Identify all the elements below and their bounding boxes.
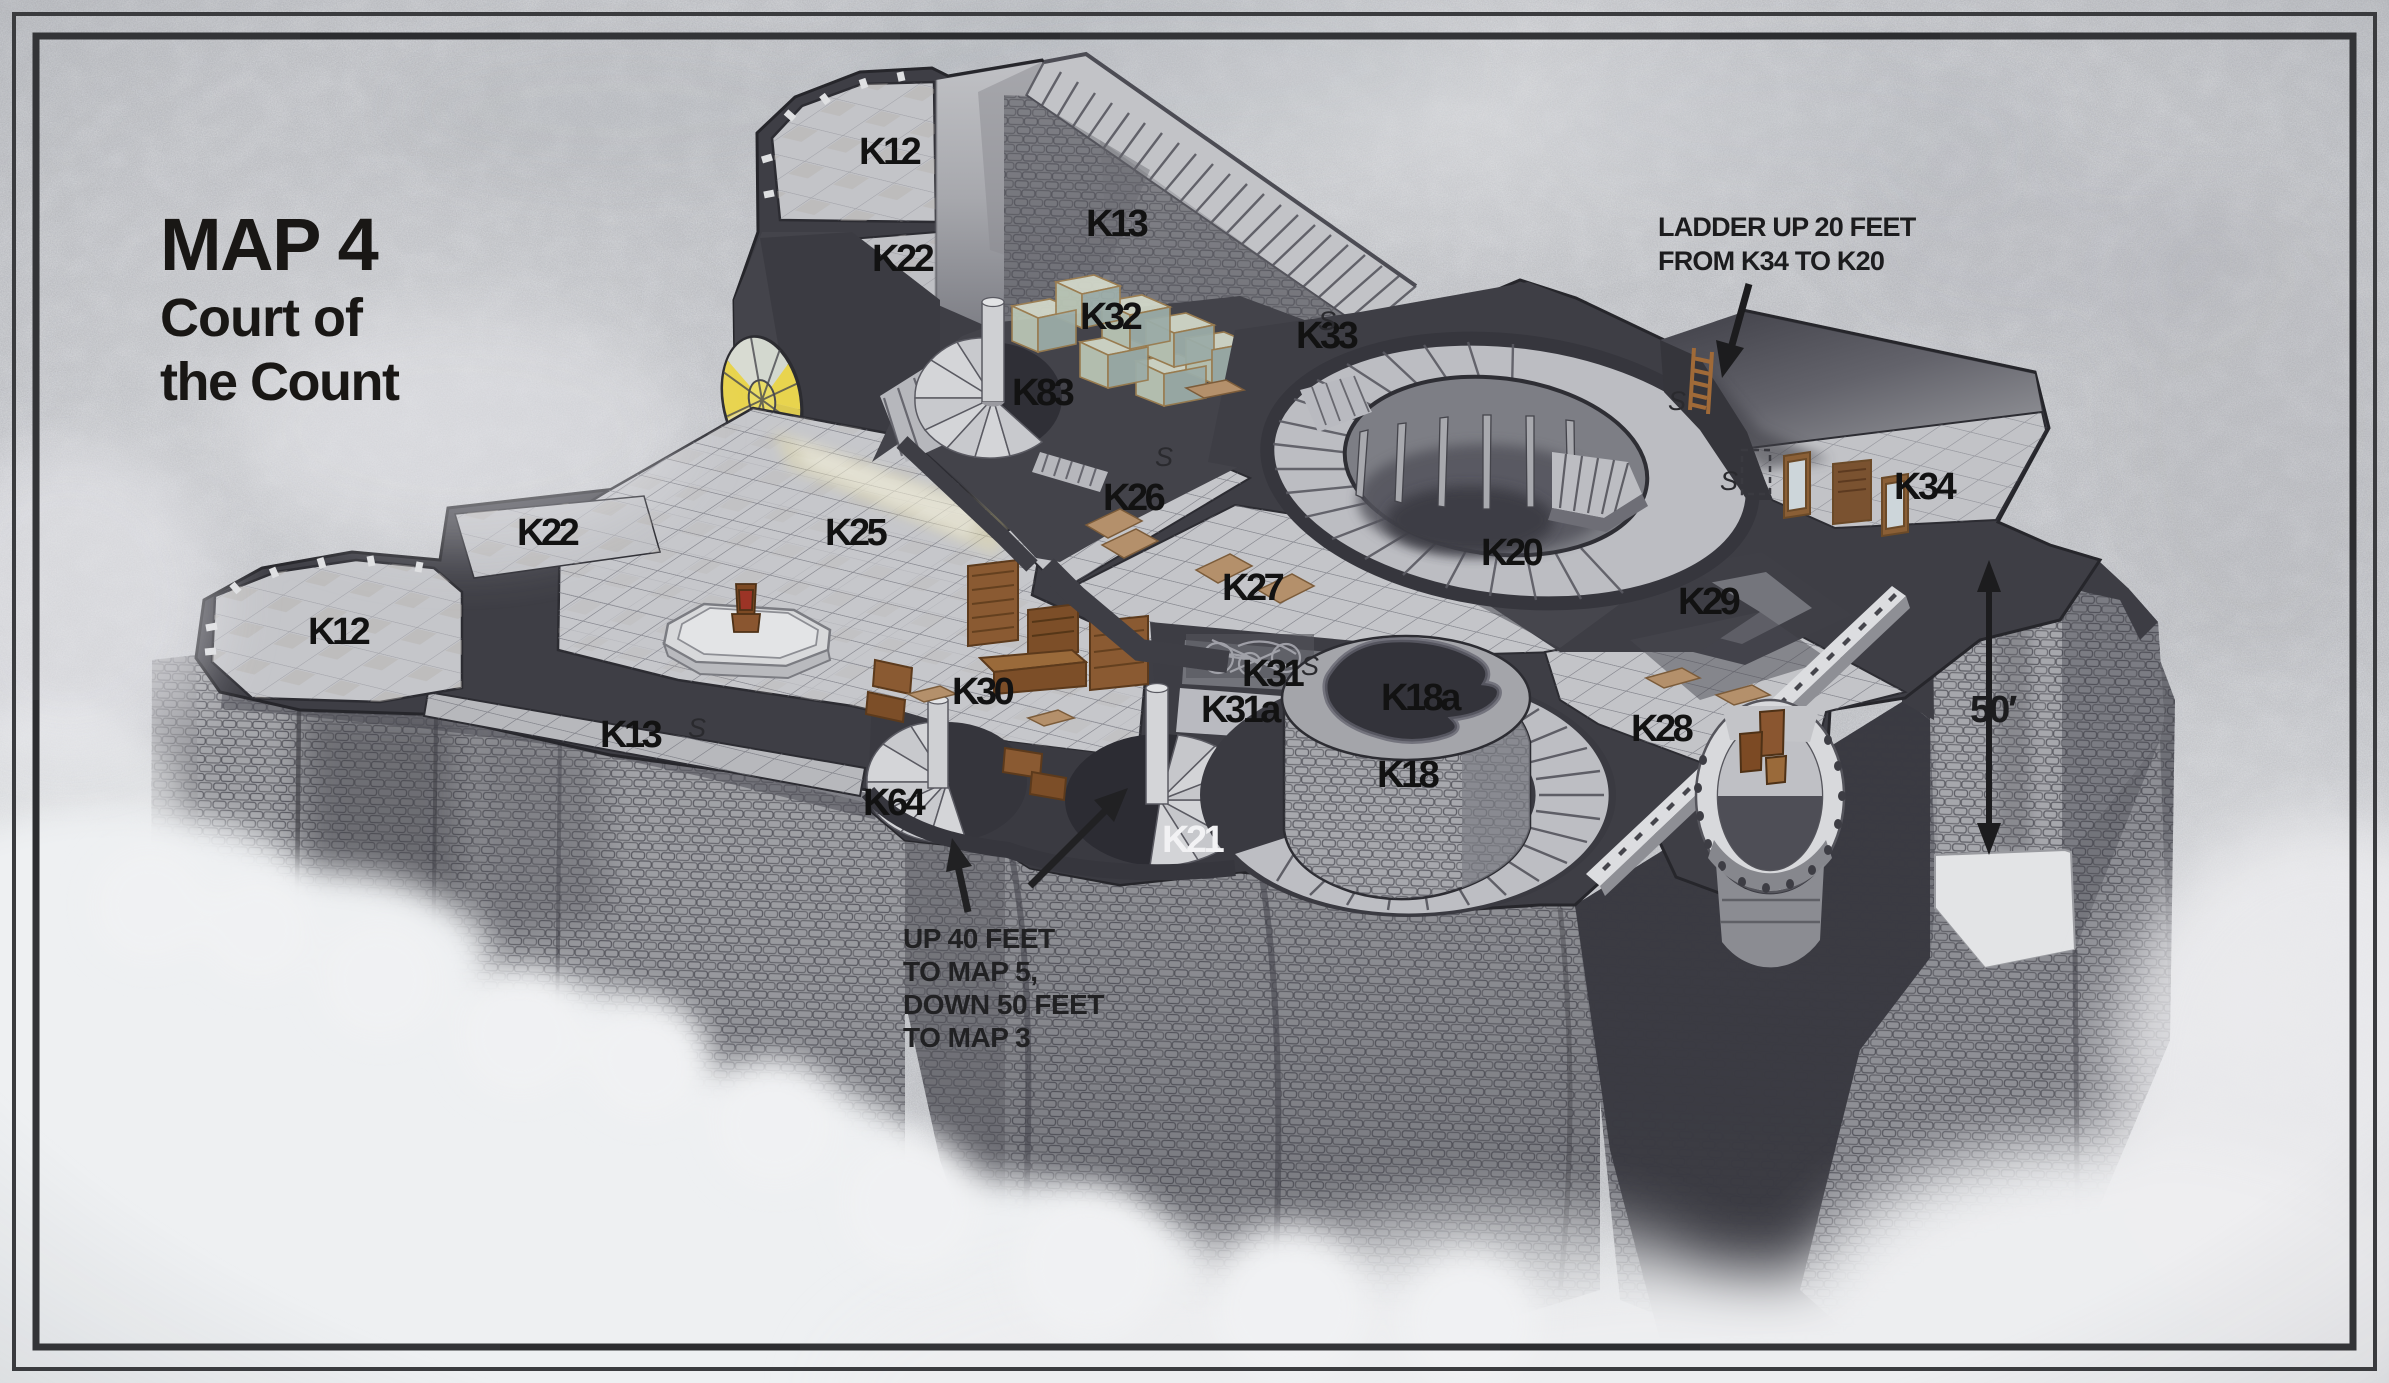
- svg-text:K31a: K31a: [1201, 689, 1282, 731]
- svg-text:Court of: Court of: [160, 288, 364, 348]
- svg-text:K30: K30: [952, 671, 1014, 713]
- svg-text:TO MAP 3: TO MAP 3: [903, 1022, 1030, 1053]
- svg-text:K83: K83: [1012, 372, 1074, 414]
- svg-text:K13: K13: [1086, 203, 1148, 245]
- svg-text:DOWN 50 FEET: DOWN 50 FEET: [903, 989, 1104, 1020]
- svg-text:K32: K32: [1080, 296, 1142, 338]
- svg-text:S: S: [1720, 466, 1738, 496]
- svg-text:50′: 50′: [1970, 689, 2017, 731]
- svg-text:K12: K12: [859, 131, 921, 173]
- svg-text:S: S: [1301, 651, 1319, 681]
- svg-text:K18a: K18a: [1381, 677, 1462, 719]
- svg-text:K21: K21: [1162, 819, 1225, 861]
- svg-text:K64: K64: [863, 782, 926, 824]
- svg-text:S: S: [1155, 442, 1173, 472]
- svg-text:K28: K28: [1631, 708, 1693, 750]
- svg-text:K12: K12: [308, 611, 370, 653]
- svg-text:K27: K27: [1222, 567, 1284, 609]
- svg-text:the Count: the Count: [160, 352, 400, 412]
- svg-text:K20: K20: [1481, 532, 1543, 574]
- svg-text:S: S: [1668, 386, 1686, 416]
- svg-text:K22: K22: [517, 512, 579, 554]
- svg-text:K13: K13: [600, 714, 662, 756]
- svg-text:K29: K29: [1678, 581, 1740, 623]
- svg-text:UP 40 FEET: UP 40 FEET: [903, 923, 1055, 954]
- svg-text:S: S: [1318, 306, 1336, 336]
- svg-text:K22: K22: [872, 238, 934, 280]
- svg-text:K26: K26: [1103, 477, 1165, 519]
- svg-text:LADDER UP 20 FEET: LADDER UP 20 FEET: [1658, 212, 1917, 242]
- svg-text:FROM K34 TO K20: FROM K34 TO K20: [1658, 246, 1884, 276]
- svg-text:TO MAP 5,: TO MAP 5,: [903, 956, 1038, 987]
- svg-text:MAP 4: MAP 4: [160, 203, 379, 286]
- svg-text:K18: K18: [1377, 754, 1439, 796]
- svg-text:K34: K34: [1894, 466, 1957, 508]
- svg-text:S: S: [688, 713, 706, 743]
- svg-text:K25: K25: [825, 512, 888, 554]
